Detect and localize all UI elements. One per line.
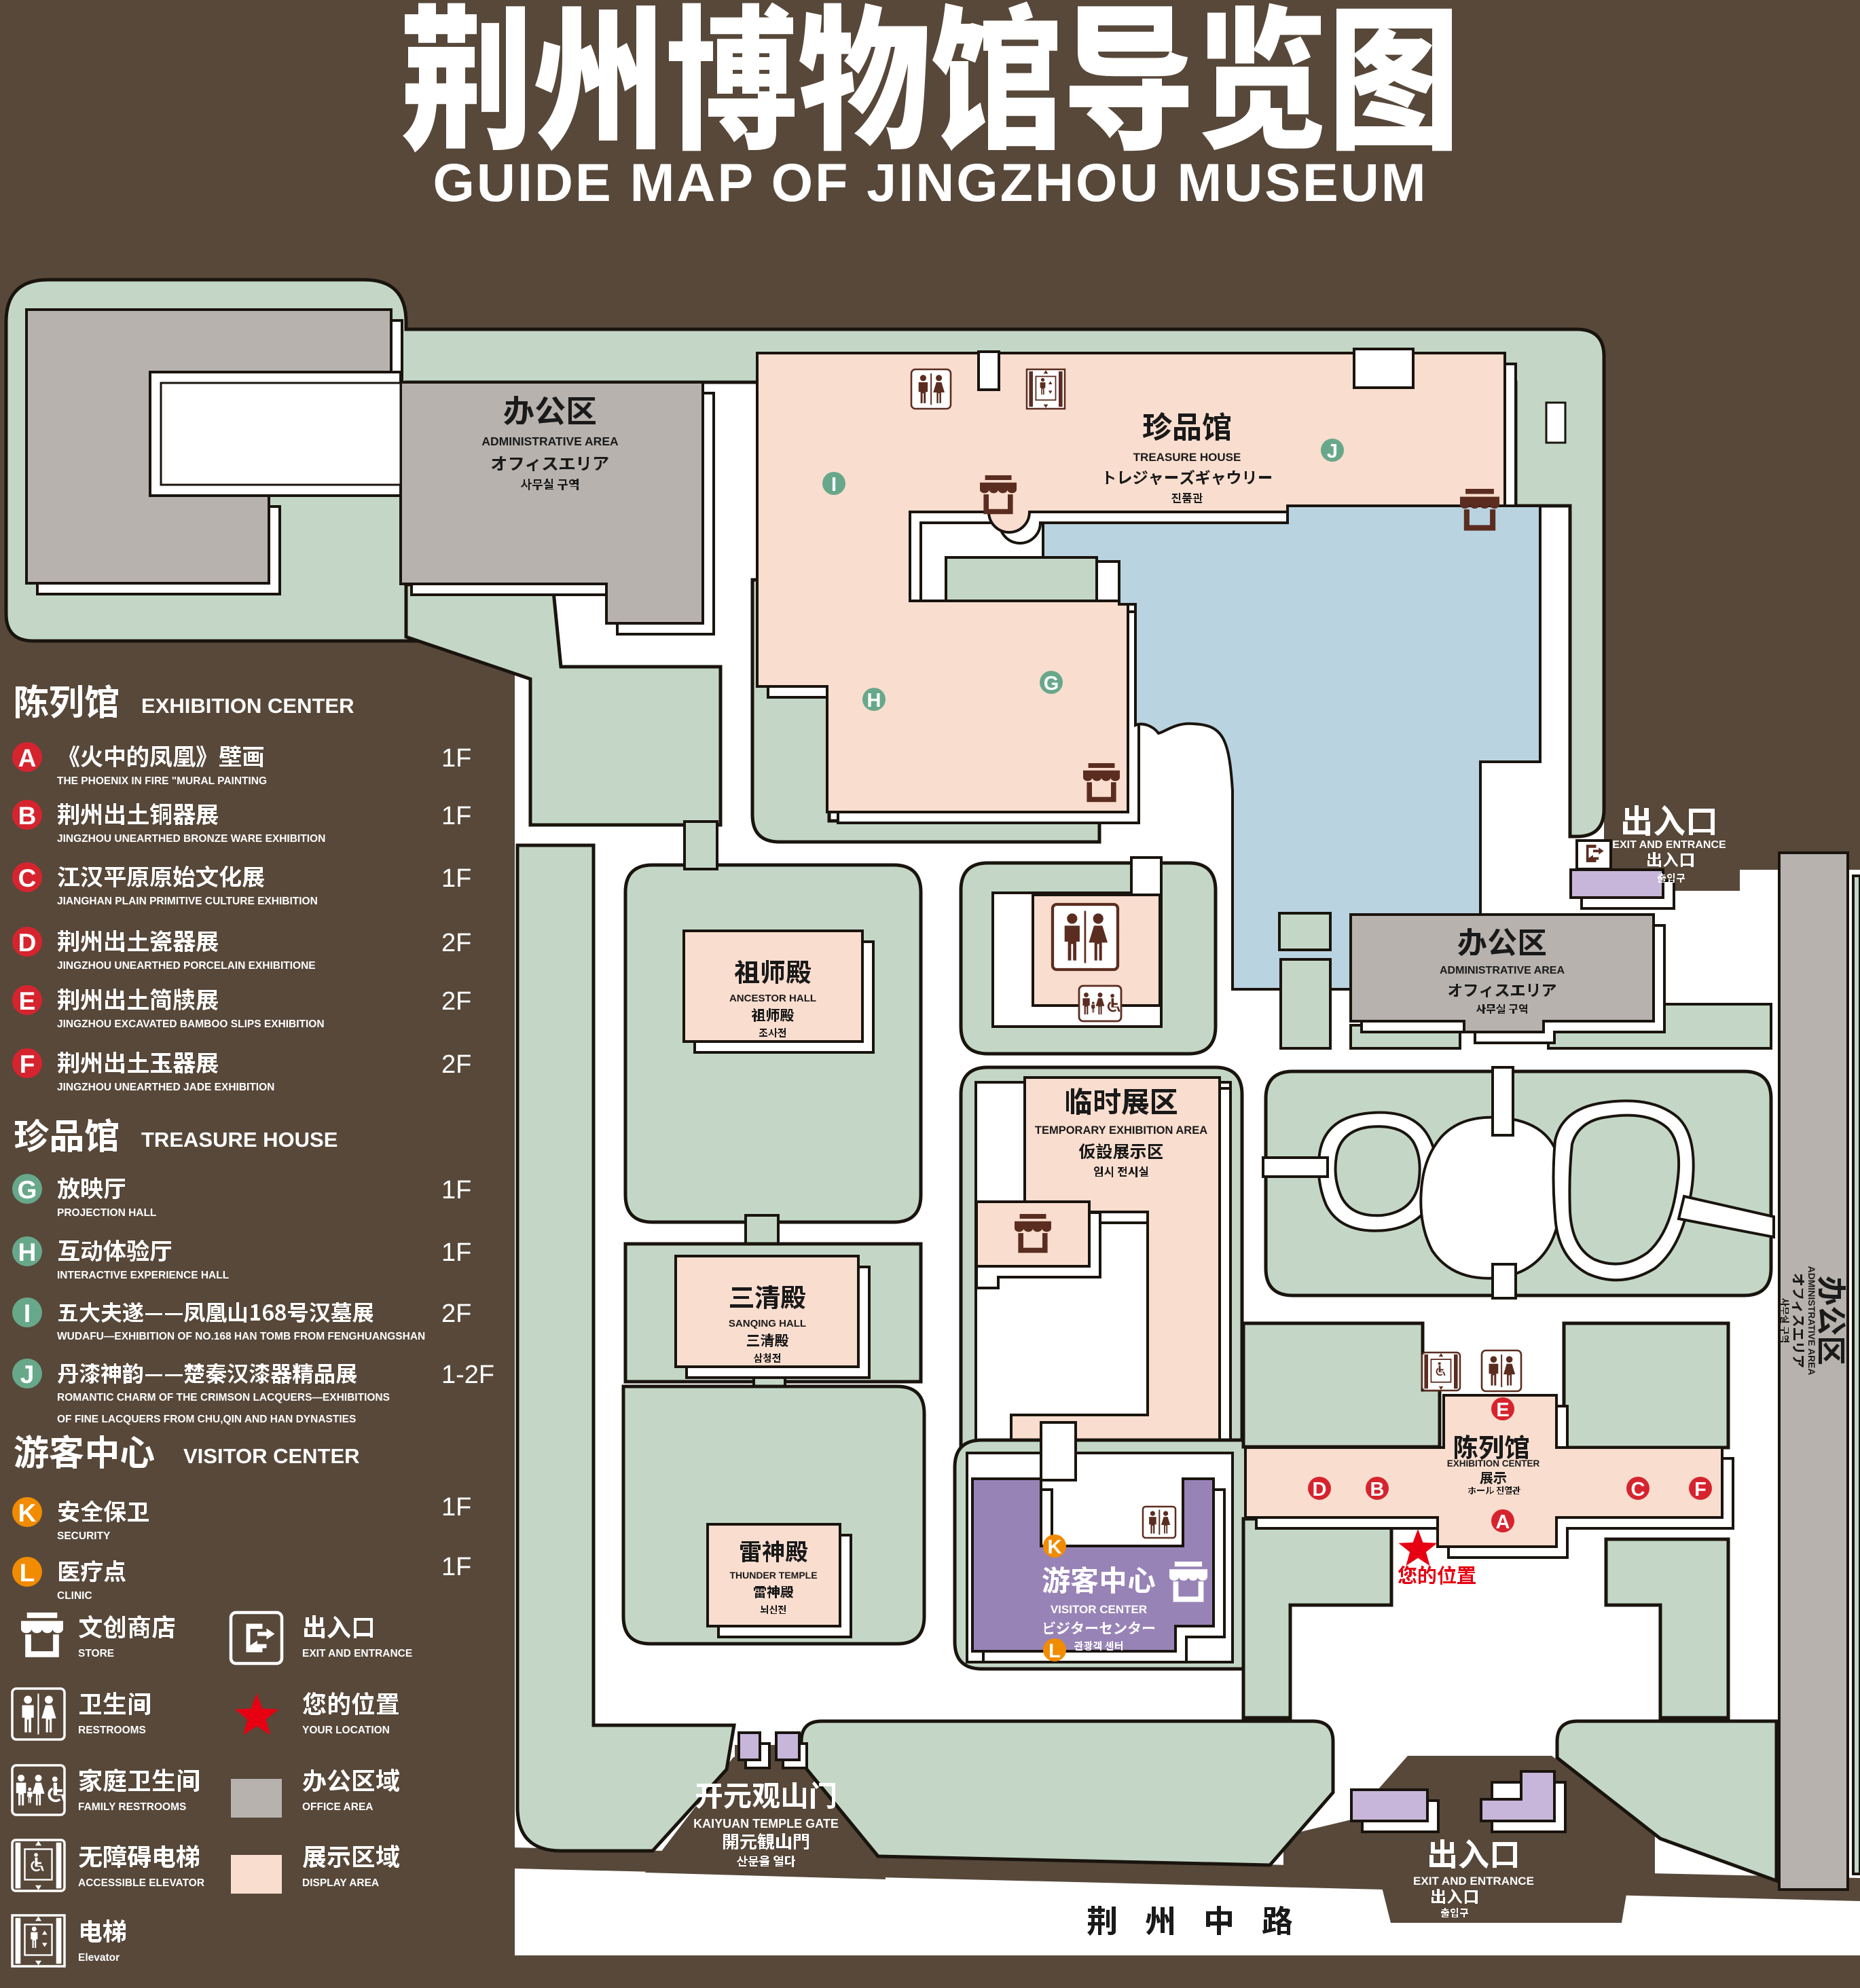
svg-text:1F: 1F	[441, 1176, 471, 1204]
svg-text:INTERACTIVE EXPERIENCE HALL: INTERACTIVE EXPERIENCE HALL	[57, 1270, 229, 1281]
svg-text:F: F	[20, 1050, 35, 1078]
svg-text:1F: 1F	[441, 864, 471, 893]
svg-text:2F: 2F	[441, 1050, 471, 1079]
svg-text:GUIDE MAP OF JINGZHOU MUSEUM: GUIDE MAP OF JINGZHOU MUSEUM	[433, 152, 1427, 213]
svg-text:OF FINE LACQUERS FROM CHU,QIN: OF FINE LACQUERS FROM CHU,QIN AND HAN DY…	[57, 1414, 356, 1425]
svg-text:K: K	[18, 1499, 37, 1527]
svg-text:F: F	[1694, 1479, 1707, 1501]
svg-text:JINGZHOU EXCAVATED BAMBOO SLIP: JINGZHOU EXCAVATED BAMBOO SLIPS EXHIBITI…	[57, 1018, 325, 1030]
svg-text:1F: 1F	[441, 1553, 471, 1581]
svg-text:J: J	[1327, 441, 1338, 462]
svg-text:1-2F: 1-2F	[441, 1361, 494, 1389]
svg-text:JINGZHOU UNEARTHED JADE EXHIBI: JINGZHOU UNEARTHED JADE EXHIBITION	[57, 1082, 274, 1093]
svg-text:SECURITY: SECURITY	[57, 1530, 111, 1542]
svg-text:1F: 1F	[441, 1238, 471, 1267]
svg-text:G: G	[1044, 673, 1059, 695]
svg-text:JIANGHAN PLAIN PRIMITIVE CULTU: JIANGHAN PLAIN PRIMITIVE CULTURE EXHIBIT…	[57, 896, 318, 907]
svg-text:H: H	[867, 690, 881, 712]
svg-text:PROJECTION HALL: PROJECTION HALL	[57, 1207, 156, 1219]
svg-text:TREASURE HOUSE: TREASURE HOUSE	[1133, 451, 1241, 464]
svg-text:B: B	[1370, 1479, 1385, 1501]
svg-text:D: D	[1313, 1479, 1327, 1501]
svg-text:KAIYUAN TEMPLE GATE: KAIYUAN TEMPLE GATE	[693, 1817, 839, 1830]
svg-text:THE PHOENIX IN FIRE "MURAL PAI: THE PHOENIX IN FIRE "MURAL PAINTING	[57, 775, 267, 787]
svg-text:ADMINISTRATIVE AREA: ADMINISTRATIVE AREA	[1440, 965, 1565, 976]
svg-text:1F: 1F	[441, 744, 471, 773]
svg-text:FAMILY RESTROOMS: FAMILY RESTROOMS	[78, 1801, 186, 1813]
svg-text:JINGZHOU UNEARTHED PORCELAIN E: JINGZHOU UNEARTHED PORCELAIN EXHIBITIONE	[57, 960, 316, 972]
svg-text:VISITOR CENTER: VISITOR CENTER	[183, 1444, 360, 1468]
svg-text:2F: 2F	[441, 1300, 471, 1328]
svg-text:EXHIBITION CENTER: EXHIBITION CENTER	[1447, 1458, 1540, 1469]
svg-text:2F: 2F	[441, 929, 471, 957]
svg-text:CLINIC: CLINIC	[57, 1590, 92, 1602]
svg-text:A: A	[1496, 1511, 1510, 1533]
svg-text:ACCESSIBLE ELEVATOR: ACCESSIBLE ELEVATOR	[78, 1877, 204, 1889]
svg-text:E: E	[1496, 1399, 1509, 1421]
svg-text:ANCESTOR HALL: ANCESTOR HALL	[729, 993, 816, 1004]
svg-text:B: B	[18, 802, 37, 830]
svg-text:1F: 1F	[441, 802, 471, 830]
svg-text:I: I	[24, 1300, 31, 1327]
svg-text:VISITOR CENTER: VISITOR CENTER	[1051, 1603, 1147, 1616]
svg-text:L: L	[20, 1559, 35, 1587]
svg-text:L: L	[1048, 1640, 1061, 1662]
svg-text:D: D	[18, 929, 37, 957]
svg-text:EXHIBITION CENTER: EXHIBITION CENTER	[141, 694, 354, 718]
svg-text:RESTROOMS: RESTROOMS	[78, 1725, 146, 1736]
svg-text:ADMINISTRATIVE AREA: ADMINISTRATIVE AREA	[481, 435, 619, 448]
svg-text:EXIT AND ENTRANCE: EXIT AND ENTRANCE	[302, 1648, 412, 1659]
svg-text:C: C	[1631, 1479, 1645, 1501]
svg-text:OFFICE AREA: OFFICE AREA	[302, 1801, 373, 1813]
svg-text:C: C	[18, 864, 37, 892]
svg-text:2F: 2F	[441, 987, 471, 1016]
svg-text:K: K	[1048, 1536, 1062, 1558]
svg-text:TREASURE HOUSE: TREASURE HOUSE	[141, 1128, 338, 1152]
svg-text:SANQING HALL: SANQING HALL	[729, 1318, 806, 1329]
svg-text:G: G	[18, 1176, 37, 1204]
svg-text:H: H	[18, 1238, 37, 1266]
svg-text:JINGZHOU UNEARTHED BRONZE WARE: JINGZHOU UNEARTHED BRONZE WARE EXHIBITIO…	[57, 833, 325, 845]
svg-text:DISPLAY AREA: DISPLAY AREA	[302, 1877, 379, 1889]
svg-text:Elevator: Elevator	[78, 1952, 120, 1964]
svg-text:EXIT AND ENTRANCE: EXIT AND ENTRANCE	[1413, 1875, 1534, 1888]
svg-text:THUNDER TEMPLE: THUNDER TEMPLE	[729, 1570, 817, 1581]
svg-text:1F: 1F	[441, 1493, 471, 1522]
svg-text:E: E	[19, 987, 36, 1015]
svg-text:WUDAFU—EXHIBITION OF NO.168 HA: WUDAFU—EXHIBITION OF NO.168 HAN TOMB FRO…	[57, 1331, 425, 1342]
svg-text:EXIT AND ENTRANCE: EXIT AND ENTRANCE	[1612, 839, 1726, 851]
svg-text:ROMANTIC CHARM OF THE CRIMSON: ROMANTIC CHARM OF THE CRIMSON LACQUERS—E…	[57, 1392, 390, 1403]
svg-text:STORE: STORE	[78, 1648, 114, 1659]
svg-text:YOUR LOCATION: YOUR LOCATION	[302, 1725, 390, 1736]
svg-text:A: A	[18, 744, 37, 772]
svg-text:TEMPORARY EXHIBITION AREA: TEMPORARY EXHIBITION AREA	[1035, 1124, 1207, 1137]
svg-text:J: J	[20, 1361, 35, 1388]
svg-text:I: I	[831, 474, 837, 496]
svg-text:ADMINISTRATIVE AREA: ADMINISTRATIVE AREA	[1806, 1266, 1817, 1376]
